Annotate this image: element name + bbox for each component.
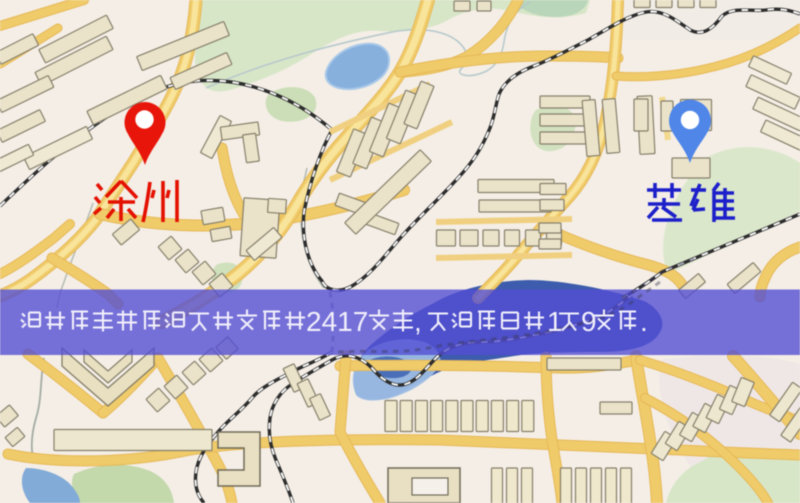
svg-text:2417: 2417 bbox=[306, 306, 368, 337]
svg-text:.: . bbox=[640, 306, 648, 337]
svg-text:,: , bbox=[414, 306, 422, 337]
svg-text:1: 1 bbox=[547, 306, 563, 337]
svg-text:9: 9 bbox=[581, 306, 597, 337]
